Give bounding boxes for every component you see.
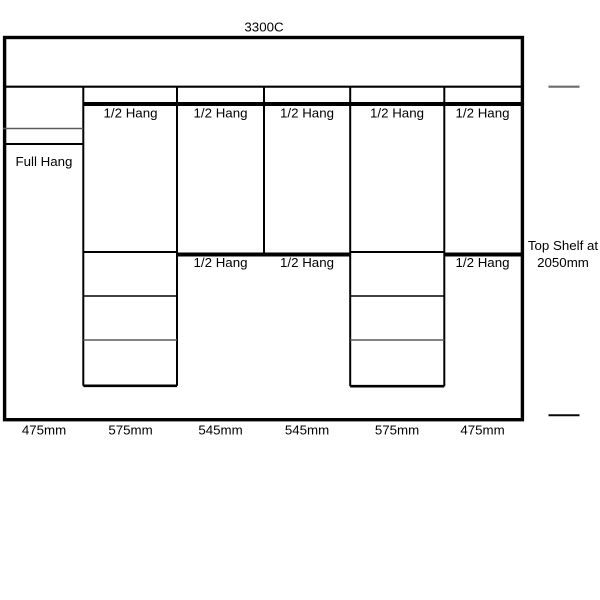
svg-text:575mm: 575mm xyxy=(108,423,152,438)
svg-text:1/2 Hang: 1/2 Hang xyxy=(280,106,334,121)
svg-text:1/2 Hang: 1/2 Hang xyxy=(456,106,510,121)
svg-text:1/2 Hang: 1/2 Hang xyxy=(194,255,248,270)
svg-text:3300C: 3300C xyxy=(244,20,284,35)
svg-text:Full Hang: Full Hang xyxy=(16,154,73,169)
svg-text:Top Shelf at: Top Shelf at xyxy=(528,238,599,253)
svg-text:2050mm: 2050mm xyxy=(537,255,589,270)
svg-text:545mm: 545mm xyxy=(285,423,329,438)
svg-text:1/2 Hang: 1/2 Hang xyxy=(104,106,158,121)
svg-text:545mm: 545mm xyxy=(198,423,242,438)
svg-text:475mm: 475mm xyxy=(460,423,504,438)
svg-text:575mm: 575mm xyxy=(375,423,419,438)
svg-text:1/2 Hang: 1/2 Hang xyxy=(194,106,248,121)
svg-text:1/2 Hang: 1/2 Hang xyxy=(280,255,334,270)
svg-text:475mm: 475mm xyxy=(22,423,66,438)
svg-text:1/2 Hang: 1/2 Hang xyxy=(370,106,424,121)
svg-text:1/2 Hang: 1/2 Hang xyxy=(456,255,510,270)
